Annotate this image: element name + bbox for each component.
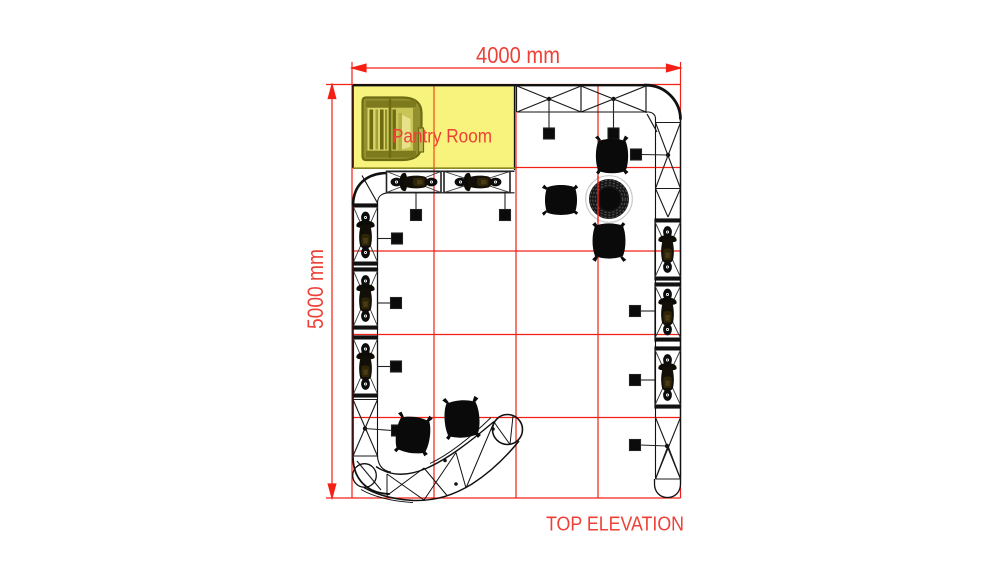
svg-text:5000 mm: 5000 mm [303,249,328,329]
svg-text:Pantry Room: Pantry Room [392,127,492,148]
svg-text:TOP ELEVATION: TOP ELEVATION [546,514,684,536]
svg-text:4000 mm: 4000 mm [476,42,560,68]
